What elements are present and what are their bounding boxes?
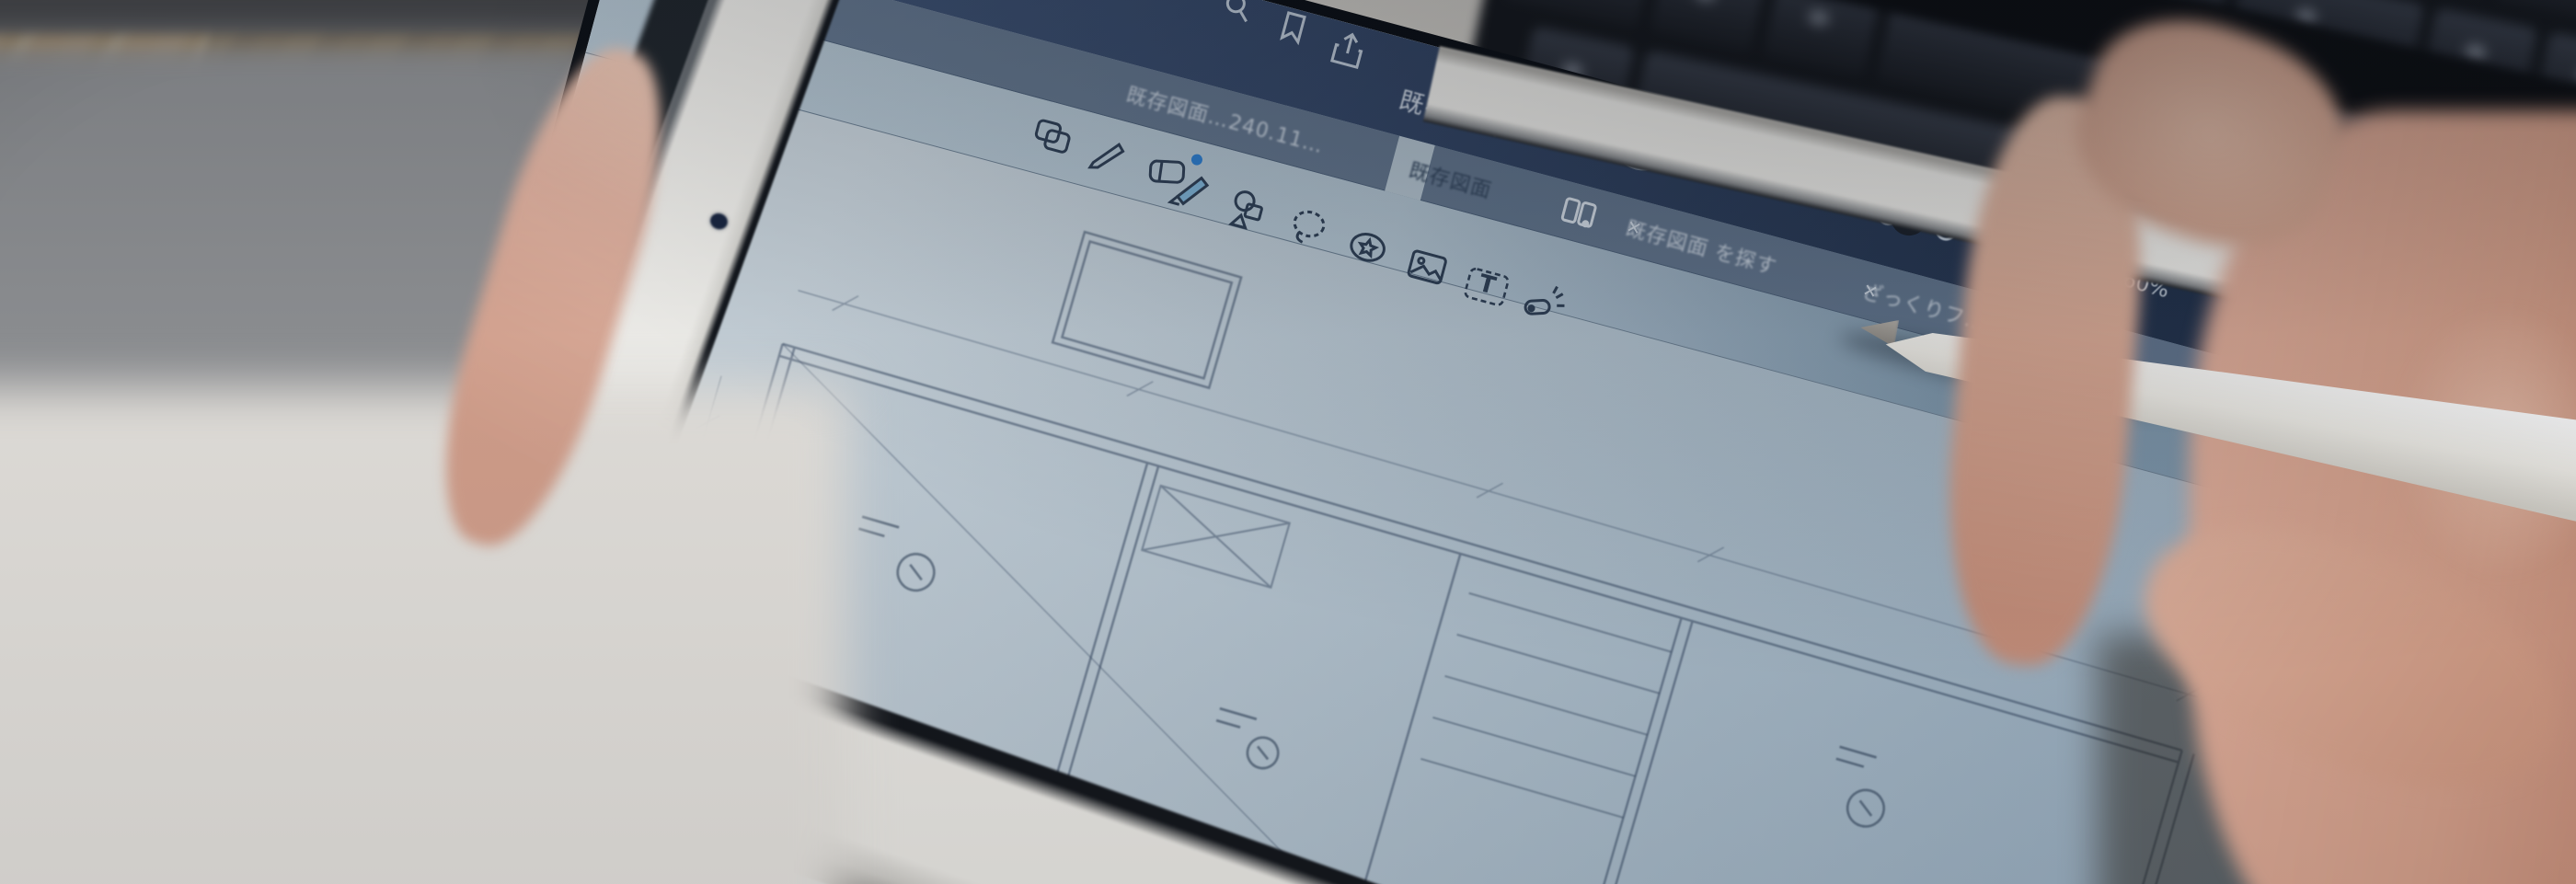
search-icon[interactable]	[1215, 0, 1260, 29]
split-view-icon[interactable]	[1557, 191, 1601, 235]
photo-scene: ⋯ 既存図面⌄ ↺ ↻ 60% 既存図面…240.11… 既存図面	[0, 0, 2576, 884]
shadow-strip	[0, 0, 607, 37]
front-camera	[708, 211, 730, 231]
bookmark-icon[interactable]	[1271, 5, 1316, 50]
tab-document-240[interactable]: 既存図面…240.11…	[1102, 60, 1153, 124]
tab-rough-plan[interactable]: ✕ ざっくりフ…	[1838, 258, 1889, 322]
share-icon[interactable]	[1326, 28, 1371, 73]
blurred-foreground	[0, 386, 846, 884]
tab-search-drawing[interactable]: ✕ 既存図面 を探す	[1602, 194, 1652, 258]
tab-existing-drawing[interactable]: 既存図面	[1385, 136, 1435, 201]
